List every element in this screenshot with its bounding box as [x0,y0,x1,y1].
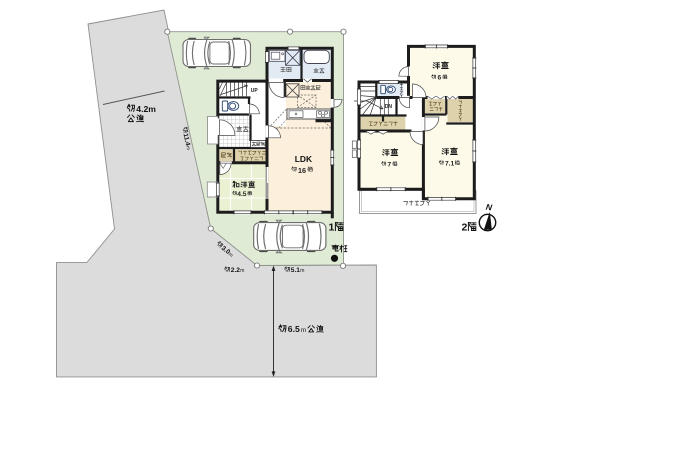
svg-text:6.5: 6.5 [288,324,300,334]
svg-text:4.2m: 4.2m [136,104,156,114]
svg-text:5.1: 5.1 [291,267,300,274]
svg-text:LDK: LDK [295,154,312,164]
svg-text:16: 16 [298,166,306,175]
svg-text:2: 2 [462,222,468,234]
svg-text:6: 6 [438,75,442,82]
svg-text:UP: UP [251,88,259,94]
svg-text:m: m [301,327,306,334]
svg-text:7.1: 7.1 [445,160,454,167]
svg-text:4.5: 4.5 [237,191,246,198]
svg-text:1: 1 [329,222,335,234]
svg-text:m: m [240,268,244,274]
svg-text:DN: DN [385,104,393,110]
svg-text:2.2: 2.2 [231,267,240,274]
svg-text:7: 7 [388,161,392,168]
svg-text:m: m [300,268,304,274]
